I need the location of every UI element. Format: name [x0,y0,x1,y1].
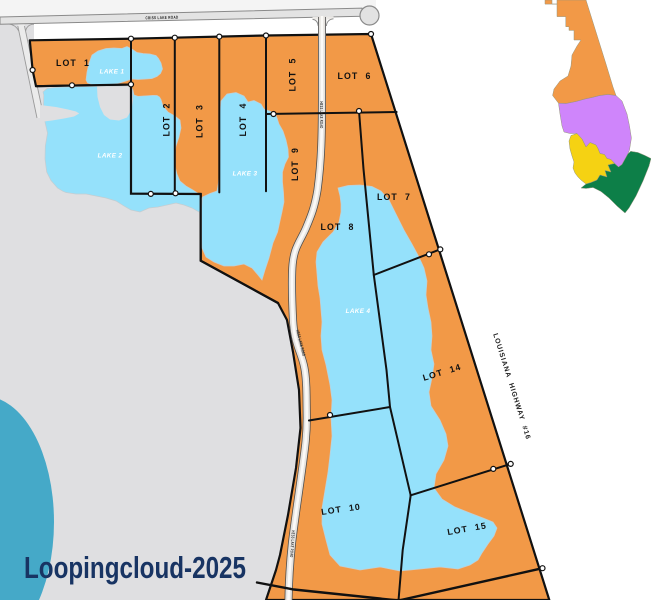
svg-text:LOT 5: LOT 5 [288,58,298,92]
svg-text:LOT 3: LOT 3 [195,104,205,138]
svg-text:LOT 9: LOT 9 [290,147,300,181]
svg-text:HESS LAKE ROAD: HESS LAKE ROAD [319,102,324,129]
svg-text:LAKE 1: LAKE 1 [100,69,125,76]
svg-text:LAKE 4: LAKE 4 [346,308,371,315]
svg-text:LOT 2: LOT 2 [162,103,172,137]
svg-text:Loopingcloud-2025: Loopingcloud-2025 [24,550,246,585]
svg-text:LOT 8: LOT 8 [321,222,355,232]
svg-text:LOT 4: LOT 4 [238,103,248,137]
svg-text:LOT 1: LOT 1 [56,58,90,68]
svg-text:LOT 7: LOT 7 [377,192,411,202]
svg-text:CRISS LAKE ROAD: CRISS LAKE ROAD [145,15,178,21]
svg-text:LAKE 3: LAKE 3 [233,171,258,178]
svg-text:LOT 6: LOT 6 [338,71,372,81]
svg-text:LAKE 2: LAKE 2 [98,153,123,160]
